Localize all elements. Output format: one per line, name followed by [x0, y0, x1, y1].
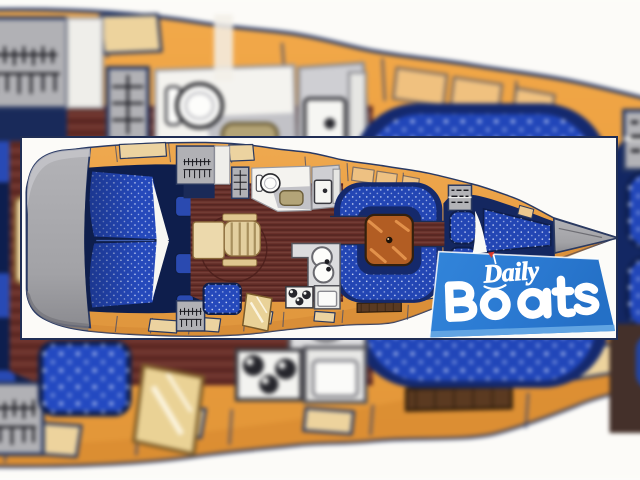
svg-text:Daily: Daily [481, 256, 540, 289]
